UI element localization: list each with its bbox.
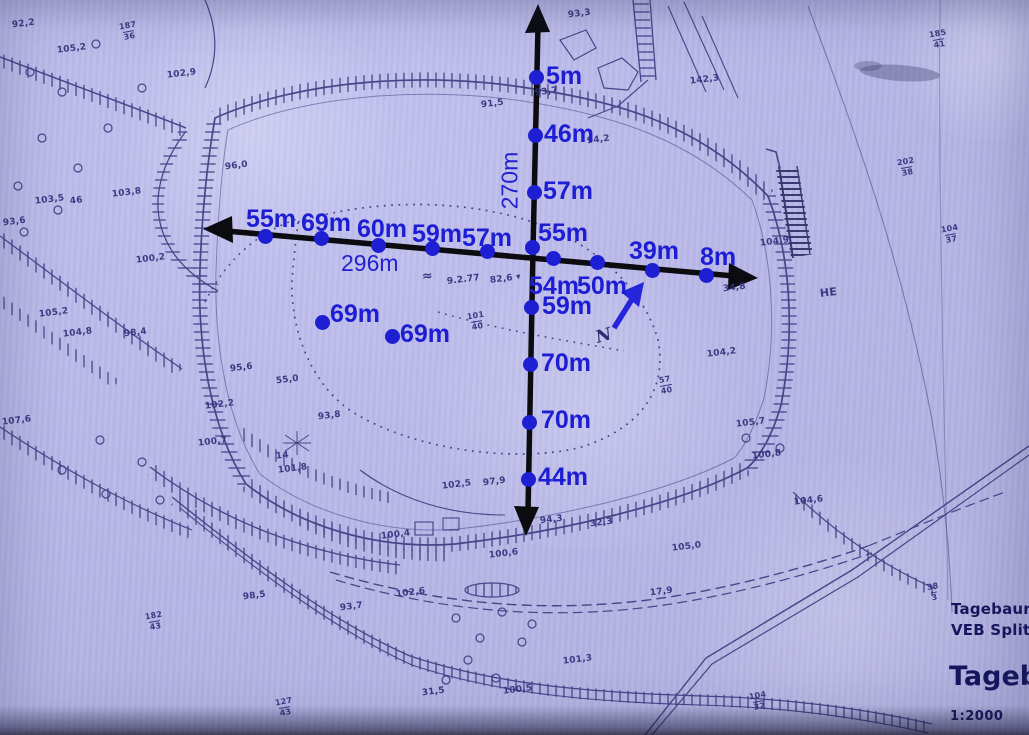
vertical-transect-point-dot xyxy=(528,128,543,143)
vertical-transect-depth-label: 5m xyxy=(546,62,582,91)
scanned-map-photo: 92,2105,218736102,993,391,593,794,2142,3… xyxy=(0,0,1029,735)
map-scale: 1:2000 xyxy=(950,709,1003,724)
horizontal-transect-depth-label: 8m xyxy=(700,243,736,272)
vertical-transect-point-dot xyxy=(523,357,538,372)
vertical-transect-depth-label: 46m xyxy=(544,120,594,149)
title-line-2: VEB Splittw xyxy=(951,621,1029,639)
horizontal-transect-depth-label: 57m xyxy=(462,224,512,253)
horizontal-transect-depth-label: 60m xyxy=(357,215,407,244)
horizontal-transect-depth-label: 69m xyxy=(301,209,351,238)
vertical-transect-depth-label: 55m xyxy=(538,219,588,248)
spot-depth-point-dot xyxy=(315,315,330,330)
vertical-transect-depth-label: 70m xyxy=(541,349,591,378)
vertical-transect-depth-label: 70m xyxy=(541,406,591,435)
horizontal-transect-depth-label: 54m xyxy=(529,272,579,301)
horizontal-transect-depth-label: 50m xyxy=(577,272,627,301)
horizontal-transect-depth-label: 55m xyxy=(246,205,296,234)
vertical-transect-point-dot xyxy=(524,300,539,315)
vertical-transect-length-label: 270m xyxy=(497,144,524,218)
depth-annotation-layer: 5m46m57m55m59m70m70m44m55m69m60m59m57m54… xyxy=(0,0,1029,735)
vertical-transect-depth-label: 44m xyxy=(538,463,588,492)
title-line-1: Tagebaurest xyxy=(951,600,1029,618)
horizontal-transect-length-label: 296m xyxy=(341,250,399,277)
horizontal-transect-depth-label: 39m xyxy=(629,237,679,266)
horizontal-transect-point-dot xyxy=(590,255,605,270)
spot-depth-point-dot xyxy=(385,329,400,344)
vertical-transect-point-dot xyxy=(521,472,536,487)
spot-depth-depth-label: 69m xyxy=(400,320,450,349)
horizontal-transect-depth-label: 59m xyxy=(412,220,462,249)
horizontal-transect-point-dot xyxy=(546,251,561,266)
title-line-3: Tagebau xyxy=(949,661,1029,692)
vertical-transect-point-dot xyxy=(522,415,537,430)
vertical-transect-point-dot xyxy=(527,185,542,200)
vertical-transect-point-dot xyxy=(529,70,544,85)
vertical-transect-depth-label: 57m xyxy=(543,177,593,206)
spot-depth-depth-label: 69m xyxy=(330,300,380,329)
